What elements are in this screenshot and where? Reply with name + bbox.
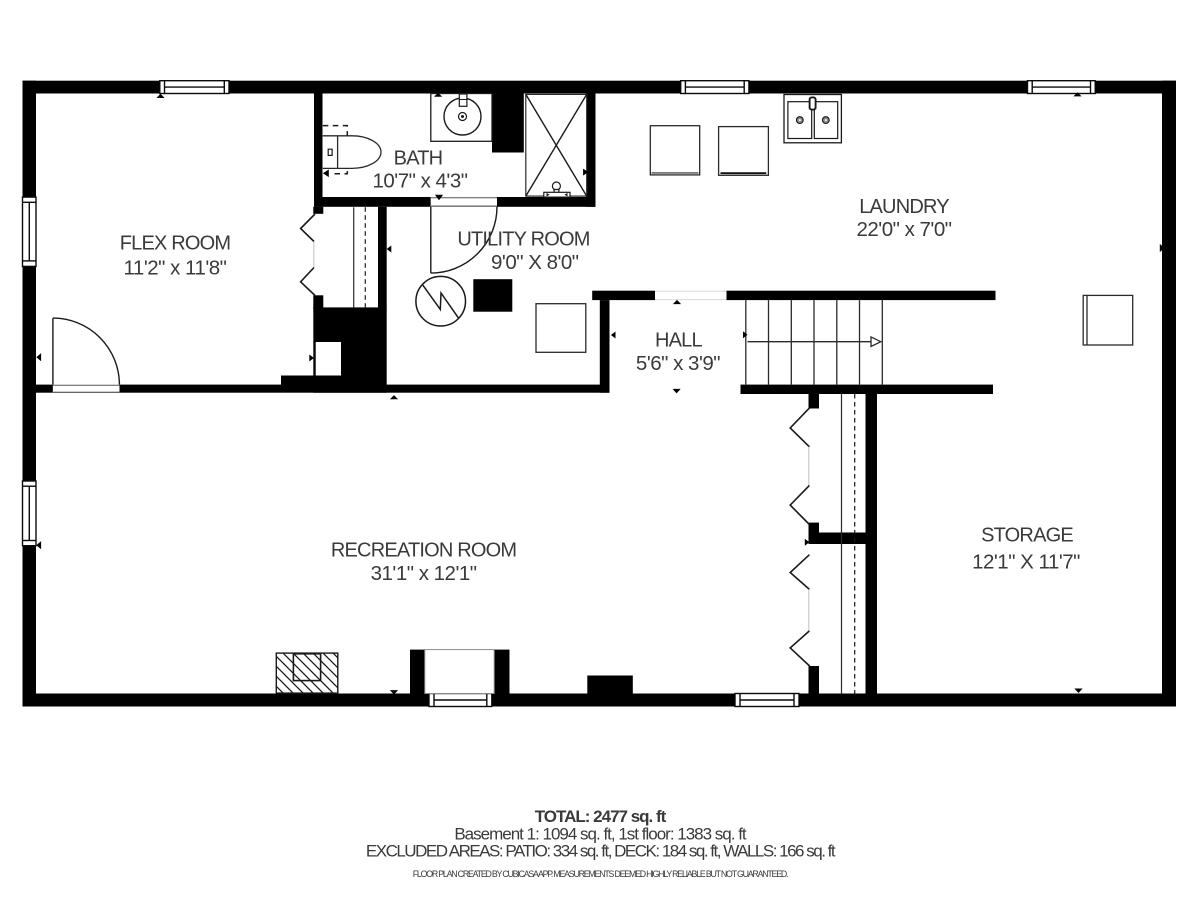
- svg-text:TOTAL: 2477 sq. ft: TOTAL: 2477 sq. ft: [535, 807, 667, 826]
- svg-text:LAUNDRY: LAUNDRY: [859, 196, 949, 218]
- svg-text:FLOOR PLAN CREATED BY CUBICASA: FLOOR PLAN CREATED BY CUBICASA APP. MEAS…: [413, 869, 788, 879]
- svg-text:31'1" x 12'1": 31'1" x 12'1": [371, 562, 477, 585]
- svg-text:11'2" x 11'8": 11'2" x 11'8": [124, 257, 227, 280]
- svg-text:HALL: HALL: [655, 330, 703, 352]
- svg-text:FLEX ROOM: FLEX ROOM: [120, 233, 231, 255]
- svg-text:EXCLUDED AREAS: PATIO: 334 sq.: EXCLUDED AREAS: PATIO: 334 sq. ft, DECK:…: [366, 842, 836, 861]
- svg-text:22'0" x 7'0": 22'0" x 7'0": [856, 218, 951, 241]
- svg-text:12'1" X 11'7": 12'1" X 11'7": [972, 551, 1080, 574]
- svg-text:STORAGE: STORAGE: [981, 524, 1073, 546]
- svg-text:9'0" X 8'0": 9'0" X 8'0": [491, 251, 579, 274]
- svg-text:5'6" x 3'9": 5'6" x 3'9": [636, 352, 720, 375]
- svg-text:10'7" x 4'3": 10'7" x 4'3": [372, 170, 467, 193]
- svg-text:BATH: BATH: [394, 148, 443, 170]
- svg-text:RECREATION ROOM: RECREATION ROOM: [331, 540, 517, 562]
- svg-text:UTILITY ROOM: UTILITY ROOM: [457, 229, 589, 251]
